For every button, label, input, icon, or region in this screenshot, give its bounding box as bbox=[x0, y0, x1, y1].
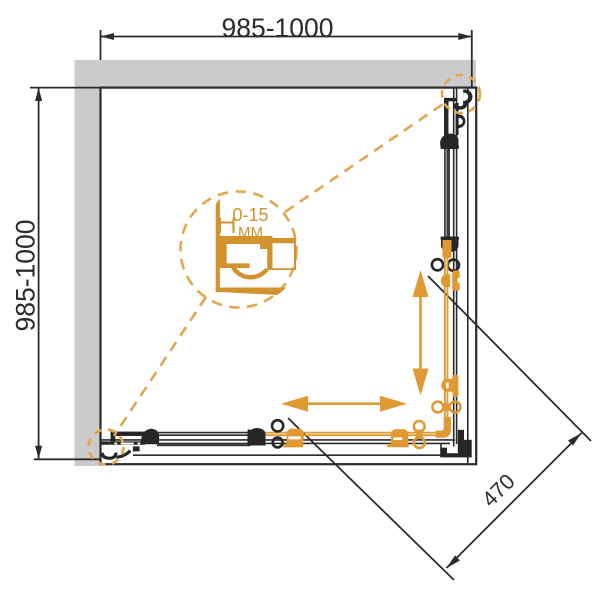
svg-text:0-15: 0-15 bbox=[232, 205, 268, 225]
svg-text:985-1000: 985-1000 bbox=[222, 13, 334, 43]
svg-text:985-1000: 985-1000 bbox=[11, 220, 41, 332]
svg-text:MM: MM bbox=[238, 224, 263, 241]
